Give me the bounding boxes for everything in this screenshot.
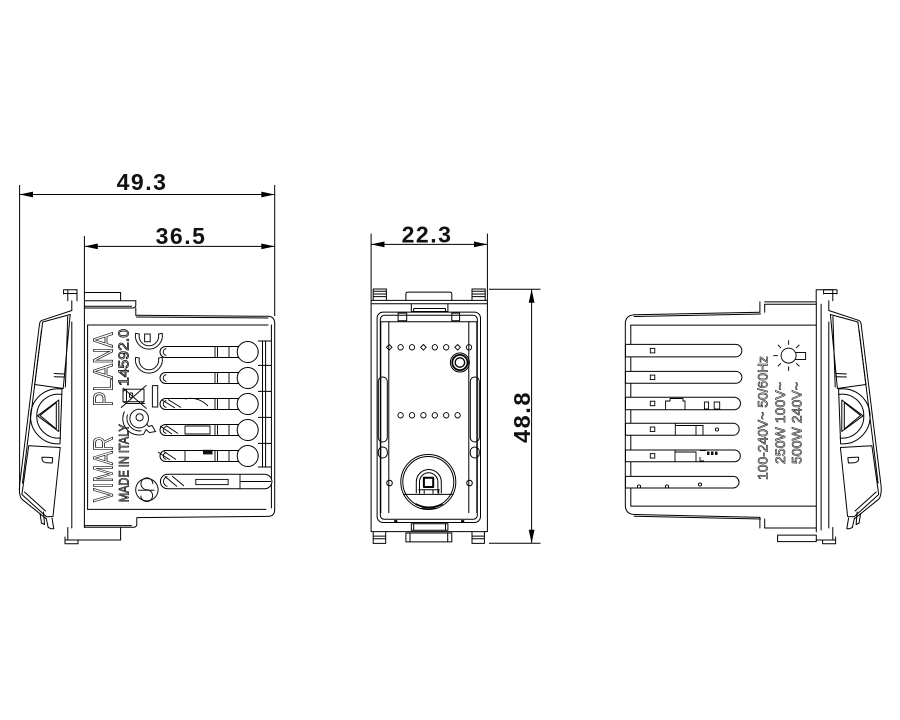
svg-text:PLANA: PLANA [88,332,119,406]
svg-text:VIMAR: VIMAR [88,436,119,502]
svg-text:250W 100V~: 250W 100V~ [772,382,788,464]
svg-text:500W 240V~: 500W 240V~ [789,382,805,464]
svg-text:48.8: 48.8 [509,391,535,443]
svg-text:MADE IN ITALY: MADE IN ITALY [116,424,132,503]
svg-text:14592.0: 14592.0 [117,329,133,386]
svg-text:36.5: 36.5 [156,223,207,249]
svg-text:22.3: 22.3 [402,222,453,248]
svg-text:49.3: 49.3 [117,169,168,195]
svg-text:100-240V~ 50/60Hz: 100-240V~ 50/60Hz [755,356,771,480]
